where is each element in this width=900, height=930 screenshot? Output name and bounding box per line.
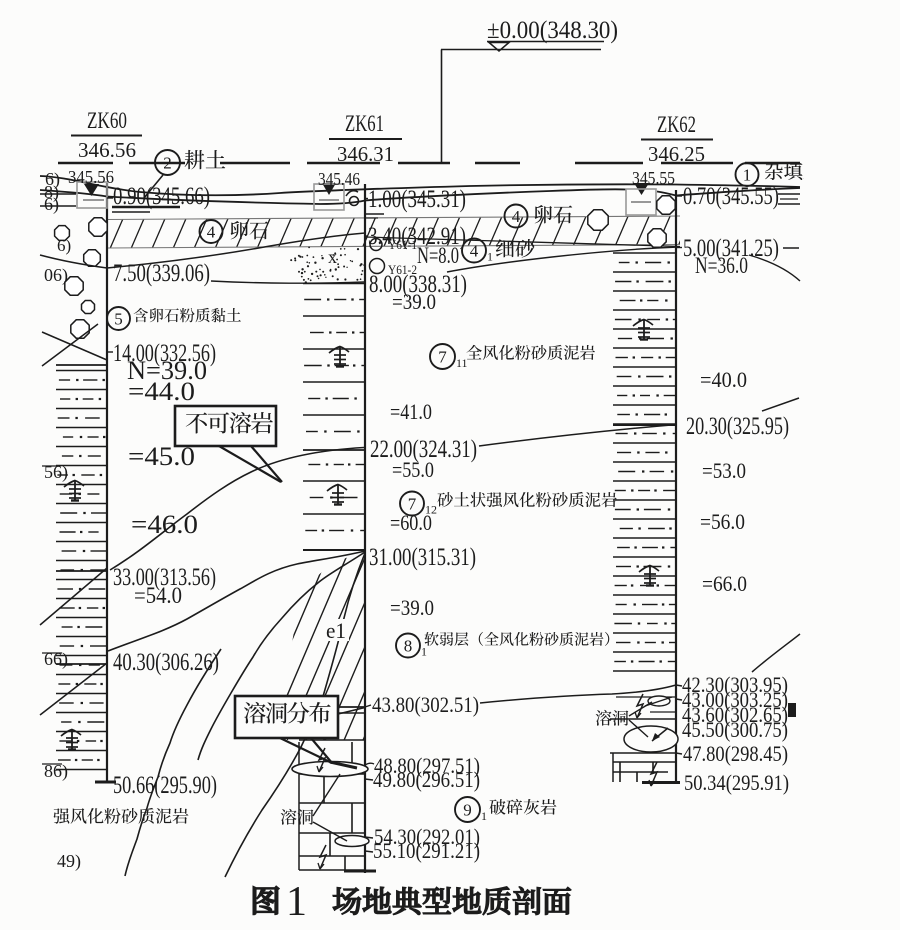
svg-text:0.70(345.55): 0.70(345.55) [683, 183, 779, 210]
svg-text:=40.0: =40.0 [700, 367, 747, 392]
svg-text:06): 06) [44, 265, 68, 286]
svg-text:1: 1 [286, 879, 307, 925]
svg-text:20.30(325.95): 20.30(325.95) [686, 413, 789, 440]
svg-text:1: 1 [481, 809, 487, 823]
svg-text:0.90(345.66): 0.90(345.66) [113, 183, 210, 210]
svg-text:45.50(300.75): 45.50(300.75) [682, 717, 788, 742]
svg-text:7.50(339.06): 7.50(339.06) [113, 260, 210, 287]
svg-text:11: 11 [456, 356, 468, 370]
svg-text:9: 9 [463, 801, 472, 820]
svg-text:4: 4 [470, 242, 479, 261]
svg-text:5: 5 [114, 310, 123, 329]
svg-text:=41.0: =41.0 [390, 399, 432, 424]
svg-text:=53.0: =53.0 [702, 458, 746, 483]
svg-text:1: 1 [743, 166, 752, 185]
svg-text:7: 7 [408, 495, 417, 514]
svg-text:4: 4 [512, 207, 521, 226]
svg-text:47.80(298.45): 47.80(298.45) [683, 741, 788, 766]
svg-text:±0.00(348.30): ±0.00(348.30) [487, 17, 618, 44]
svg-text:x: x [328, 247, 337, 267]
svg-text:66): 66) [44, 649, 68, 670]
svg-text:1.00(345.31): 1.00(345.31) [368, 186, 466, 213]
svg-text:1: 1 [487, 250, 493, 264]
svg-text:Y61-1: Y61-1 [388, 237, 417, 252]
svg-text:345.46: 345.46 [318, 169, 360, 189]
svg-text:N=36.0: N=36.0 [695, 253, 748, 278]
svg-text:=55.0: =55.0 [392, 457, 434, 482]
svg-text:56): 56) [44, 462, 68, 483]
svg-text:=46.0: =46.0 [131, 510, 198, 539]
svg-text:4: 4 [207, 223, 216, 242]
svg-text:12: 12 [425, 503, 437, 517]
svg-text:=39.0: =39.0 [390, 595, 434, 620]
svg-text:7: 7 [438, 348, 447, 367]
svg-text:=39.0: =39.0 [392, 289, 436, 314]
svg-text:ZK60: ZK60 [87, 108, 127, 133]
svg-text:345.56: 345.56 [68, 167, 114, 187]
svg-text:e1: e1 [326, 618, 346, 643]
svg-text:345.55: 345.55 [632, 168, 675, 188]
svg-text:=66.0: =66.0 [702, 571, 747, 596]
svg-text:55.10(291.21): 55.10(291.21) [373, 838, 480, 863]
svg-text:346.25: 346.25 [648, 142, 705, 166]
svg-text:40.30(306.26): 40.30(306.26) [113, 649, 219, 676]
svg-text:49.80(296.51): 49.80(296.51) [373, 767, 480, 792]
svg-text:43.80(302.51): 43.80(302.51) [372, 692, 479, 717]
svg-text:49): 49) [57, 851, 81, 872]
svg-text:31.00(315.31): 31.00(315.31) [369, 544, 476, 571]
svg-text:1: 1 [421, 645, 427, 659]
svg-text:=44.0: =44.0 [128, 377, 195, 406]
svg-text:N=8.0: N=8.0 [417, 243, 459, 268]
svg-text:346.56: 346.56 [78, 138, 136, 162]
svg-text:2: 2 [163, 154, 172, 173]
svg-text:346.31: 346.31 [337, 142, 394, 166]
svg-text:=56.0: =56.0 [700, 509, 745, 534]
svg-text:=54.0: =54.0 [134, 583, 182, 608]
svg-text:50.34(295.91): 50.34(295.91) [684, 770, 789, 795]
svg-text:6): 6) [44, 194, 59, 215]
svg-text:6): 6) [57, 236, 71, 255]
svg-text:8: 8 [404, 637, 413, 656]
svg-text:ZK62: ZK62 [657, 112, 696, 137]
svg-text:50.66(295.90): 50.66(295.90) [113, 772, 217, 799]
svg-text:ZK61: ZK61 [345, 111, 384, 136]
